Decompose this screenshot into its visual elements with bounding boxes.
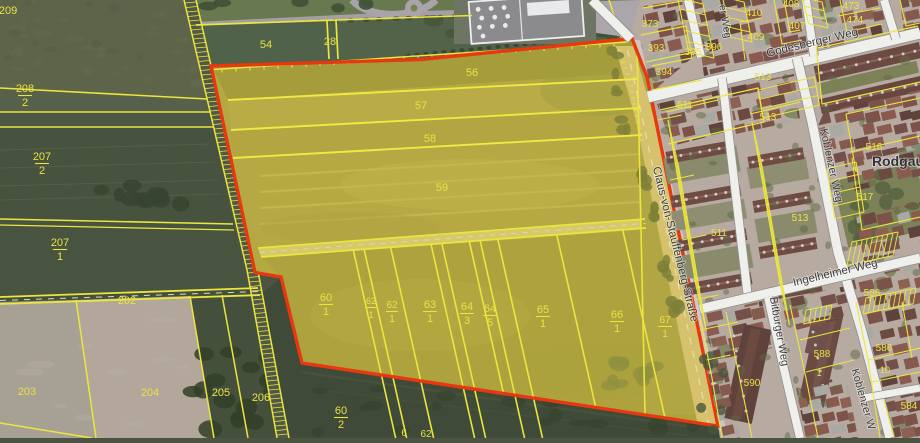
svg-text:511: 511 <box>711 228 727 239</box>
svg-text:64: 64 <box>484 303 496 315</box>
svg-text:202: 202 <box>118 295 136 307</box>
svg-text:517: 517 <box>857 192 874 203</box>
svg-text:586: 586 <box>864 288 881 299</box>
svg-text:1: 1 <box>816 368 821 378</box>
svg-text:58: 58 <box>424 133 436 145</box>
svg-text:5: 5 <box>487 317 493 329</box>
svg-text:208: 208 <box>16 83 34 95</box>
svg-text:1: 1 <box>57 251 63 263</box>
svg-text:588: 588 <box>814 349 831 360</box>
svg-text:513: 513 <box>760 112 777 123</box>
svg-text:1: 1 <box>368 310 373 320</box>
svg-text:57: 57 <box>415 100 427 112</box>
svg-text:62: 62 <box>420 429 432 438</box>
svg-text:60: 60 <box>320 292 332 304</box>
svg-text:1: 1 <box>389 314 395 325</box>
svg-text:209: 209 <box>0 5 17 17</box>
svg-text:63: 63 <box>424 299 436 311</box>
svg-text:67: 67 <box>659 315 671 326</box>
svg-text:207: 207 <box>33 151 51 163</box>
svg-text:511: 511 <box>677 100 693 111</box>
svg-text:473: 473 <box>843 1 860 12</box>
svg-text:2: 2 <box>338 419 344 431</box>
svg-text:10: 10 <box>880 365 890 375</box>
svg-text:56: 56 <box>466 67 478 79</box>
svg-text:408: 408 <box>783 0 800 10</box>
svg-text:584: 584 <box>901 401 918 412</box>
svg-text:59: 59 <box>436 182 448 194</box>
svg-text:396: 396 <box>706 42 723 53</box>
svg-text:410: 410 <box>746 8 763 19</box>
svg-text:207: 207 <box>51 237 69 249</box>
svg-text:62: 62 <box>366 296 376 306</box>
svg-text:1: 1 <box>427 313 433 325</box>
svg-text:66: 66 <box>611 309 623 321</box>
svg-text:3: 3 <box>464 315 470 327</box>
svg-text:513: 513 <box>755 72 772 83</box>
svg-text:Rodgau: Rodgau <box>872 153 920 169</box>
svg-text:409: 409 <box>748 32 765 43</box>
svg-text:62: 62 <box>386 300 398 311</box>
svg-text:474: 474 <box>847 15 864 26</box>
svg-text:513: 513 <box>792 213 809 224</box>
svg-text:2: 2 <box>22 97 28 109</box>
svg-text:203: 203 <box>18 386 36 398</box>
svg-text:28: 28 <box>324 36 336 48</box>
svg-text:586: 586 <box>876 343 893 354</box>
svg-text:1: 1 <box>323 306 329 318</box>
svg-text:2: 2 <box>39 165 45 177</box>
svg-text:1: 1 <box>662 329 668 340</box>
svg-text:888: 888 <box>438 233 450 240</box>
svg-text:1: 1 <box>614 323 620 335</box>
svg-text:407: 407 <box>789 21 806 32</box>
svg-text:373: 373 <box>642 19 659 30</box>
svg-text:1: 1 <box>540 318 546 330</box>
svg-text:64: 64 <box>461 301 473 313</box>
svg-text:516: 516 <box>866 142 883 153</box>
svg-text:205: 205 <box>212 387 230 399</box>
svg-text:204: 204 <box>141 387 159 399</box>
svg-text:65: 65 <box>537 304 549 316</box>
svg-text:6: 6 <box>401 428 407 438</box>
svg-text:54: 54 <box>260 39 272 51</box>
svg-text:394: 394 <box>656 67 673 78</box>
svg-text:393: 393 <box>648 43 665 54</box>
svg-text:60: 60 <box>335 405 347 417</box>
svg-text:590: 590 <box>744 378 761 389</box>
svg-text:305: 305 <box>685 47 702 58</box>
svg-text:206: 206 <box>252 392 270 404</box>
